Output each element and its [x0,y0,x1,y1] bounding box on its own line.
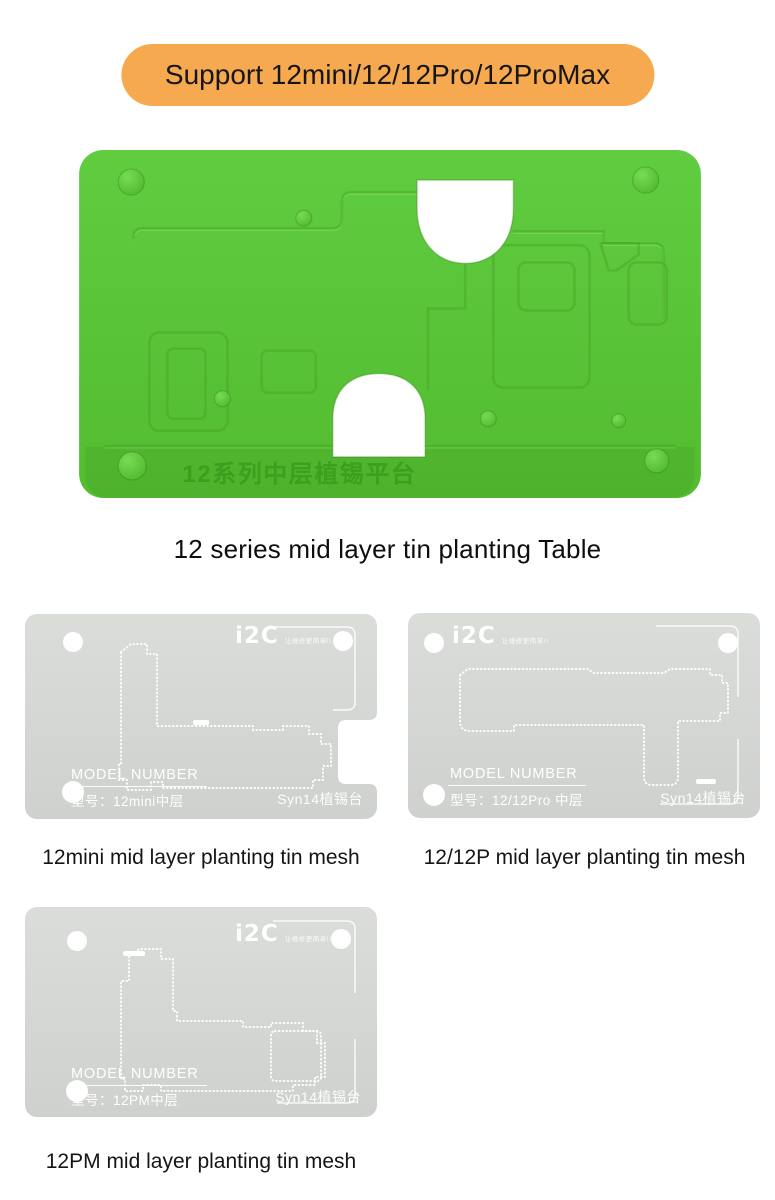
model-number-label: MODEL NUMBER [69,767,207,787]
locator-pin [612,414,626,428]
model-number-label: MODEL NUMBER [448,766,586,786]
model-number-block: MODEL NUMBER 型号：12PM中层 [69,1066,207,1109]
corner-bump [633,167,659,193]
i2c-logo: i2C 让维修更简单!! [235,923,331,946]
i2c-logo: i2C 让维修更简单!! [452,625,548,648]
corner-bump [118,452,146,480]
model-number-block: MODEL NUMBER 型号：12mini中层 [69,767,207,810]
model-number-value: 型号：12mini中层 [69,787,207,810]
stencil-card-12mini: i2C 让维修更简单!! MODEL NUMBER 型号：12mini中层 Sy… [25,614,377,819]
i2c-logo-slogan: 让维修更简单!! [502,639,549,649]
platform-caption: 12 series mid layer tin planting Table [0,534,775,565]
page: Support 12mini/12/12Pro/12ProMax [0,0,775,1200]
stencil-caption-12pm: 12PM mid layer planting tin mesh [25,1150,377,1174]
model-number-value: 型号：12PM中层 [69,1086,207,1109]
locator-pin [296,210,312,226]
model-number-label: MODEL NUMBER [69,1066,207,1086]
i2c-logo-text: i2C [452,625,496,648]
alignment-dash [123,951,145,956]
locator-pin [214,391,230,407]
locator-pin [480,411,496,427]
mounting-hole [67,931,87,951]
stencil-caption-12mini: 12mini mid layer planting tin mesh [25,846,377,870]
mounting-hole [718,633,738,653]
mounting-hole [424,633,444,653]
platform-code-label: Syn14植锡台 [277,789,363,809]
corner-bump [118,169,144,195]
stencil-card-12pm: i2C 让维修更简单!! MODEL NUMBER 型号：12PM中层 Syn1… [25,907,377,1117]
platform-code-label: Syn14植锡台 [275,1087,361,1107]
mounting-hole [63,632,83,652]
stencil-card-12-12pro: i2C 让维修更简单!! MODEL NUMBER 型号：12/12Pro 中层… [408,613,760,818]
platform-code-label: Syn14植锡台 [660,788,746,808]
support-badge: Support 12mini/12/12Pro/12ProMax [121,44,654,106]
model-number-value: 型号：12/12Pro 中层 [448,786,586,809]
mounting-hole [423,784,445,806]
stencil-caption-12-12p: 12/12P mid layer planting tin mesh [408,846,761,870]
i2c-logo-slogan: 让维修更简单!! [285,937,332,947]
alignment-dash [696,779,716,784]
model-number-block: MODEL NUMBER 型号：12/12Pro 中层 [448,766,586,809]
i2c-logo-text: i2C [235,625,279,648]
green-platform-svg: 12系列中层植锡平台 [78,150,702,498]
green-platform-figure: 12系列中层植锡平台 [78,150,702,498]
bottom-cutout [333,374,425,457]
mounting-hole [331,929,351,949]
i2c-logo: i2C 让维修更简单!! [235,625,331,648]
platform-engraving: 12系列中层植锡平台 [182,460,416,488]
corner-bump [645,449,669,473]
i2c-logo-slogan: 让维修更简单!! [285,639,332,649]
mounting-hole [333,631,353,651]
i2c-logo-text: i2C [235,923,279,946]
alignment-dash [193,720,209,725]
